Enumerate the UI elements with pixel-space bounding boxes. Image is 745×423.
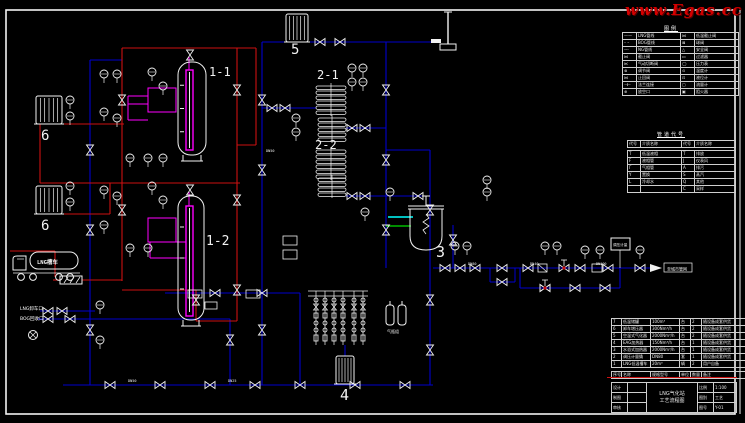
pipe-tag-1: DN50 (128, 379, 136, 383)
drawing-name: 工艺流程图 (648, 398, 696, 405)
table-cell (641, 186, 682, 193)
pipe-tag-3: DN80 (468, 262, 476, 266)
table-cell: – – (623, 40, 637, 47)
pipe-tag-4: DN40 (530, 262, 538, 266)
type-label: 图别 (698, 393, 714, 403)
unload-port-label: LNG卸车口 (20, 306, 43, 312)
gas-piping (38, 42, 652, 385)
equipment-list-table: 7低温储罐100m³台2随设备成套供货6卸车增压器300Nm³/h台2随设备成套… (611, 318, 745, 368)
table-cell: 压力表 (695, 61, 739, 68)
drawingno-value: Y-01 (714, 403, 737, 413)
table-cell (628, 186, 641, 193)
table-cell: C (682, 186, 695, 193)
table-cell: 其他 (695, 179, 736, 186)
title-block: 设计 LNG气化站 工艺流程图 比例 1:100 制图 图别 工艺 审核 图号 … (611, 382, 737, 413)
table-cell: 调压计量撬 (622, 354, 651, 361)
table-cell: 2 (691, 333, 702, 340)
table-cell: 1 (691, 354, 702, 361)
table-cell: ┄┄ (623, 47, 637, 54)
table-cell: —— (623, 33, 637, 40)
draft-label: 制图 (612, 393, 628, 403)
table-cell: 20m³ (651, 361, 680, 368)
table-cell: Q (682, 179, 695, 186)
table-cell: 安全阀 (695, 47, 739, 54)
bog-port-label: BOG回收口 (20, 316, 44, 322)
label-tank-1-2: 1-2 (206, 234, 229, 249)
table-cell: 卸车增压器 (622, 326, 651, 333)
table-cell: EAG加热器 (622, 340, 651, 347)
table-cell: 液相管 (641, 158, 682, 165)
table-cell: 流量计 (695, 82, 739, 89)
table-cell: 辆 (680, 361, 691, 368)
valve-icon (187, 185, 194, 195)
table-cell: 3 (612, 347, 622, 354)
table-cell: ⋈ (681, 33, 695, 40)
code-header: 介质名称 (695, 141, 736, 148)
label-tank-1-1: 1-1 (209, 65, 231, 79)
table-cell: 液位计 (695, 75, 739, 82)
table-cell: Γ (628, 165, 641, 172)
table-cell: 低温储罐 (622, 319, 651, 326)
table-cell: ⊠ (681, 40, 695, 47)
table-cell: 2 (691, 361, 702, 368)
table-cell: 球阀 (695, 40, 739, 47)
code-header: 代号 (682, 141, 695, 148)
table-cell: S (682, 172, 695, 179)
pipe-tag-6: DN50 (266, 149, 274, 153)
regulator-icon (543, 286, 546, 289)
table-cell: ⋈ (623, 54, 637, 61)
table-cell: 阻火器 (695, 89, 739, 96)
table-cell: T (628, 151, 641, 158)
table-cell: 随设备成套供货 (702, 333, 745, 340)
table-cell: NG管线 (637, 47, 681, 54)
cad-viewport: 1-1 1-2 2-1 2-2 3 4 5 6 6 LNG槽车 气瓶组 至城市管… (0, 0, 745, 423)
table-cell: 法兰连接 (637, 82, 681, 89)
instrument-lines (128, 57, 193, 316)
table-cell: 空温式气化器 (622, 333, 651, 340)
outlet-label: 至城市管网 (667, 266, 687, 272)
table-cell: 放空口 (637, 89, 681, 96)
table-cell: 1 (612, 361, 622, 368)
table-cell: 6 (612, 326, 622, 333)
scale-label: 比例 (698, 383, 714, 393)
table-cell: 随设备成套供货 (702, 326, 745, 333)
table-cell: ⊗ (623, 68, 637, 75)
table-cell: 用户自备 (702, 361, 745, 368)
table-cell: 低温截止阀 (695, 33, 739, 40)
scale-value: 1:100 (714, 383, 737, 393)
legend-table: ——LNG管线⋈低温截止阀– –BOG管线⊠球阀┄┄NG管线△安全阀⋈截止阀▭过… (622, 32, 739, 96)
table-cell: 1 (691, 347, 702, 354)
table-cell: 300Nm³/h (651, 326, 680, 333)
table-cell: 7 (612, 319, 622, 326)
table-cell: 随设备成套供货 (702, 340, 745, 347)
table-cell: 2000Nm³/h (651, 347, 680, 354)
pipe-code-rows: T低温液相T排放F液相管J仪表风Γ气相管A排污Y置换S蒸汽L冷却水Q其他C采样 (627, 150, 736, 193)
table-cell: 4 (612, 340, 622, 347)
table-cell: 2 (691, 326, 702, 333)
drawingno-label: 图号 (698, 403, 714, 413)
table-cell: 2000Nm³/h (651, 333, 680, 340)
table-cell: 采样 (695, 186, 736, 193)
regulator-icon (562, 266, 565, 269)
table-cell: 水浴式加热器 (622, 347, 651, 354)
table-cell: 随设备成套供货 (702, 354, 745, 361)
design-label: 设计 (612, 383, 628, 393)
label-pressurizer-6b: 6 (41, 218, 49, 234)
table-cell: 100m³ (651, 319, 680, 326)
table-cell: ⊣⊢ (623, 82, 637, 89)
table-cell: 蒸汽 (695, 172, 736, 179)
watermark: www.Egas.cc (625, 1, 742, 19)
label-vaporizer-2-2: 2-2 (315, 138, 337, 152)
check-label: 审核 (612, 403, 628, 413)
table-cell: ⊡ (681, 75, 695, 82)
table-cell: 台 (680, 340, 691, 347)
table-cell: J (682, 158, 695, 165)
table-cell: A (682, 165, 695, 172)
valve-icon (187, 50, 194, 60)
table-cell: 仪表风 (695, 158, 736, 165)
pipe-code-title: 管道代号 (657, 131, 685, 138)
table-cell: F (628, 158, 641, 165)
table-cell: 150Nm³/h (651, 340, 680, 347)
label-vaporizer-4: 4 (340, 386, 349, 404)
table-cell: 止回阀 (637, 75, 681, 82)
label-eag-5: 5 (291, 42, 299, 58)
table-cell: ⊕ (623, 89, 637, 96)
pipe-code-table: 代号 介质名称 代号 介质名称 (627, 140, 736, 148)
table-cell: 排放 (695, 151, 736, 158)
table-cell: ▣ (681, 89, 695, 96)
code-header: 介质名称 (641, 141, 682, 148)
table-cell: 温度计 (695, 68, 739, 75)
type-value: 工艺 (714, 393, 737, 403)
table-cell: ⋉ (623, 61, 637, 68)
table-cell: L (628, 179, 641, 186)
table-cell: ▭ (681, 54, 695, 61)
table-cell: 气动切断阀 (637, 61, 681, 68)
table-cell: 台 (680, 333, 691, 340)
table-cell: LNG管线 (637, 33, 681, 40)
table-cell: 冷却水 (641, 179, 682, 186)
table-cell: DN80 (651, 354, 680, 361)
skid-box-label: 调压计量 (613, 242, 628, 247)
table-cell: 台 (680, 326, 691, 333)
pipe-tag-2: DN25 (228, 379, 236, 383)
table-cell: 2 (612, 354, 622, 361)
cylinder-group-label: 气瓶组 (387, 328, 399, 334)
table-cell: 低温液相 (641, 151, 682, 158)
label-vaporizer-2-1: 2-1 (317, 68, 339, 82)
red-revision-line (607, 377, 737, 378)
table-cell: 台 (680, 347, 691, 354)
table-cell: ⊙ (681, 68, 695, 75)
table-cell: LNG低温槽车 (622, 361, 651, 368)
table-cell: BOG管线 (637, 40, 681, 47)
table-cell: 台 (680, 319, 691, 326)
table-cell: 排污 (695, 165, 736, 172)
table-cell: 套 (680, 354, 691, 361)
table-cell: ⋈ (623, 75, 637, 82)
liquid-piping (10, 48, 256, 321)
label-heater-3: 3 (436, 243, 445, 261)
pipe-tag-5: DN100 (596, 262, 607, 266)
table-cell: 截止阀 (637, 54, 681, 61)
table-cell: 调节阀 (637, 68, 681, 75)
drawing-title: LNG气化站 工艺流程图 (647, 383, 698, 413)
table-cell: 随设备成套供货 (702, 347, 745, 354)
table-cell: 置换 (641, 172, 682, 179)
code-header: 代号 (628, 141, 641, 148)
table-cell: ▢ (681, 82, 695, 89)
table-cell: 2 (691, 319, 702, 326)
table-cell: T (682, 151, 695, 158)
table-cell: 过滤器 (695, 54, 739, 61)
table-cell: △ (681, 47, 695, 54)
table-cell: 气相管 (641, 165, 682, 172)
legend-title: 图例 (664, 25, 678, 32)
table-cell: 5 (612, 333, 622, 340)
table-cell: Y (628, 172, 641, 179)
table-cell: 1 (691, 340, 702, 347)
table-cell: 随设备成套供货 (702, 319, 745, 326)
table-cell: ◯ (681, 61, 695, 68)
truck-body-text: LNG槽车 (37, 258, 58, 266)
label-pressurizer-6a: 6 (41, 128, 49, 144)
